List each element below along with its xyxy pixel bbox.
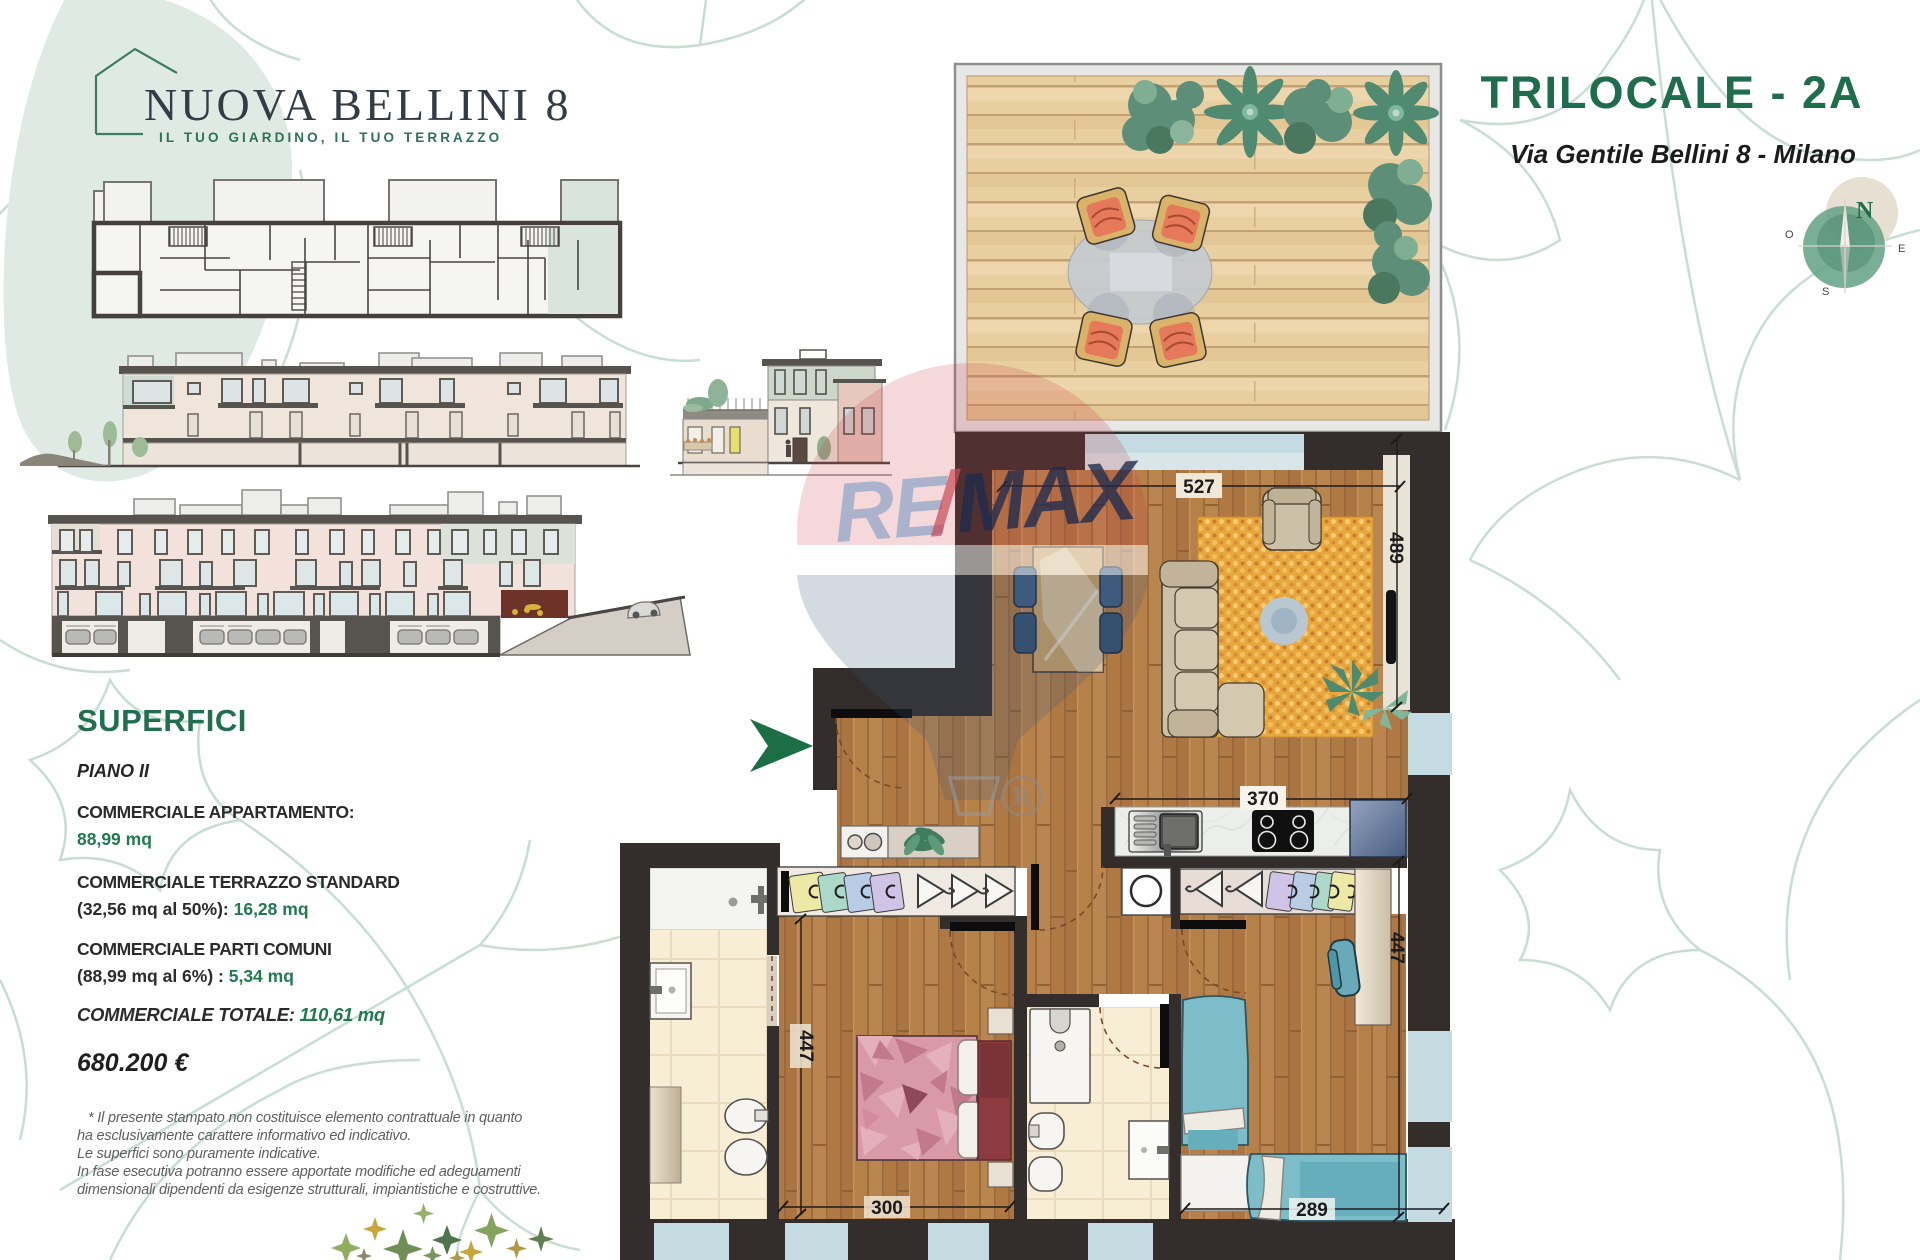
svg-text:MAX: MAX bbox=[952, 442, 1145, 550]
svg-text:COMMERCIALE TOTALE: 110,61 mq: COMMERCIALE TOTALE: 110,61 mq bbox=[77, 1004, 385, 1025]
svg-text:Le superfici sono puramente in: Le superfici sono puramente indicative. bbox=[77, 1146, 321, 1162]
svg-text:300: 300 bbox=[871, 1198, 903, 1219]
svg-text:SUPERFICI: SUPERFICI bbox=[77, 703, 247, 738]
svg-text:NUOVA BELLINI 8: NUOVA BELLINI 8 bbox=[144, 79, 571, 130]
svg-text:COMMERCIALE PARTI COMUNI: COMMERCIALE PARTI COMUNI bbox=[77, 939, 332, 959]
svg-text:PIANO II: PIANO II bbox=[77, 761, 150, 781]
svg-text:* Il presente stampato non cos: * Il presente stampato non costituisce e… bbox=[88, 1110, 522, 1126]
svg-text:680.200 €: 680.200 € bbox=[77, 1049, 189, 1077]
svg-text:O: O bbox=[1785, 229, 1794, 241]
svg-text:Via Gentile Bellini 8 - Milano: Via Gentile Bellini 8 - Milano bbox=[1510, 139, 1856, 169]
svg-text:S: S bbox=[1822, 286, 1829, 298]
svg-text:447: 447 bbox=[795, 1030, 816, 1062]
svg-text:COMMERCIALE TERRAZZO STANDARD: COMMERCIALE TERRAZZO STANDARD bbox=[77, 872, 400, 892]
svg-text:N: N bbox=[1856, 198, 1874, 224]
svg-text:COMMERCIALE APPARTAMENTO:: COMMERCIALE APPARTAMENTO: bbox=[77, 802, 354, 822]
svg-text:289: 289 bbox=[1296, 1200, 1328, 1221]
svg-text:489: 489 bbox=[1385, 532, 1406, 564]
svg-text:E: E bbox=[1898, 243, 1905, 255]
svg-text:370: 370 bbox=[1247, 789, 1279, 810]
svg-text:(88,99 mq al 6%) : 5,34 mq: (88,99 mq al 6%) : 5,34 mq bbox=[77, 966, 294, 986]
svg-text:TRILOCALE - 2A: TRILOCALE - 2A bbox=[1481, 67, 1864, 118]
svg-text:In fase esecutiva potranno ess: In fase esecutiva potranno essere apport… bbox=[77, 1164, 521, 1180]
svg-text:447: 447 bbox=[1386, 932, 1407, 964]
svg-text:IL TUO GIARDINO, IL TUO TERRAZ: IL TUO GIARDINO, IL TUO TERRAZZO bbox=[159, 130, 502, 145]
svg-text:(32,56 mq al 50%): 16,28 mq: (32,56 mq al 50%): 16,28 mq bbox=[77, 899, 309, 919]
svg-text:ha esclusivamente carattere in: ha esclusivamente carattere informativo … bbox=[77, 1128, 411, 1144]
svg-text:527: 527 bbox=[1183, 477, 1215, 498]
svg-text:dimensionali dipendenti da esi: dimensionali dipendenti da esigenze stru… bbox=[77, 1182, 541, 1198]
svg-text:88,99 mq: 88,99 mq bbox=[77, 829, 152, 849]
svg-text:R: R bbox=[1013, 782, 1032, 811]
